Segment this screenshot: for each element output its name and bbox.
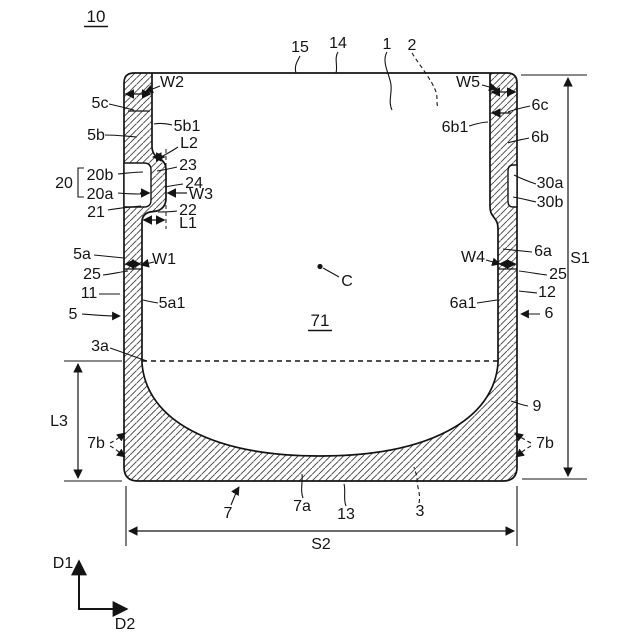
center-point-c xyxy=(317,264,322,269)
label-c: C xyxy=(341,273,353,290)
label-7b-left: 7b xyxy=(87,435,105,452)
label-7a: 7a xyxy=(293,498,311,515)
label-cavity-71: 71 xyxy=(311,311,330,330)
label-20: 20 xyxy=(55,175,73,192)
leader-c xyxy=(323,268,339,277)
left-wall-groove-20 xyxy=(124,163,151,207)
label-25-right: 25 xyxy=(549,266,567,283)
label-20b: 20b xyxy=(87,167,114,184)
leader-6b1 xyxy=(469,122,488,126)
label-7b-right: 7b xyxy=(536,435,554,452)
leader-15 xyxy=(295,56,300,73)
leader-6a1 xyxy=(477,300,497,303)
label-5b1: 5b1 xyxy=(174,118,201,135)
label-5: 5 xyxy=(69,306,78,323)
leader-5b1 xyxy=(154,123,172,125)
label-l3: L3 xyxy=(50,413,68,430)
bracket-20 xyxy=(78,168,84,197)
label-s2: S2 xyxy=(311,536,331,553)
label-w5: W5 xyxy=(456,74,480,91)
leader-2 xyxy=(412,53,438,108)
label-s1: S1 xyxy=(570,250,590,267)
leader-12 xyxy=(519,291,537,293)
label-6: 6 xyxy=(545,305,554,322)
label-14: 14 xyxy=(329,35,347,52)
leader-7b-right-lower xyxy=(516,446,531,457)
label-figure-number: 10 xyxy=(87,7,106,26)
label-23: 23 xyxy=(179,157,197,174)
label-w3: W3 xyxy=(189,186,213,203)
label-30a: 30a xyxy=(537,175,564,192)
label-11: 11 xyxy=(81,285,98,302)
label-9: 9 xyxy=(533,398,542,415)
label-6c: 6c xyxy=(532,97,549,114)
leader-5 xyxy=(82,314,120,316)
patent-figure-page: 10 15 14 1 2 W2 W5 5c 6c 5b 6b 5b1 6b1 L… xyxy=(0,0,640,640)
label-21: 21 xyxy=(87,204,105,221)
leader-14 xyxy=(336,52,338,73)
leader-5a1 xyxy=(143,300,158,303)
label-13: 13 xyxy=(337,506,355,523)
right-wall-groove-30 xyxy=(508,165,517,207)
label-25-left: 25 xyxy=(83,266,101,283)
label-5c: 5c xyxy=(92,95,109,112)
leader-5a xyxy=(94,255,124,258)
leader-24 xyxy=(165,184,183,187)
leader-13 xyxy=(344,484,346,506)
leader-25-right xyxy=(519,271,547,275)
label-15: 15 xyxy=(291,39,309,56)
label-w4: W4 xyxy=(461,249,485,266)
leader-7b-left-upper xyxy=(110,433,125,443)
label-7: 7 xyxy=(224,505,233,522)
label-6a: 6a xyxy=(534,243,552,260)
label-d2: D2 xyxy=(115,616,136,633)
label-2: 2 xyxy=(408,37,417,54)
label-5b: 5b xyxy=(87,127,105,144)
leader-7b-left-lower xyxy=(110,446,125,457)
label-6a1: 6a1 xyxy=(450,295,477,312)
label-w1: W1 xyxy=(152,251,176,268)
label-12: 12 xyxy=(538,284,556,301)
label-l2: L2 xyxy=(180,135,198,152)
label-5a: 5a xyxy=(73,246,91,263)
label-20a: 20a xyxy=(87,186,114,203)
label-d1: D1 xyxy=(53,555,74,572)
label-w2: W2 xyxy=(160,74,184,91)
patent-figure: 10 15 14 1 2 W2 W5 5c 6c 5b 6b 5b1 6b1 L… xyxy=(0,0,640,640)
leader-l2 xyxy=(163,147,178,156)
label-l1: L1 xyxy=(179,215,197,232)
label-3a: 3a xyxy=(91,338,109,355)
label-6b: 6b xyxy=(531,129,549,146)
leader-1 xyxy=(385,52,392,110)
leader-22 xyxy=(158,211,177,212)
direction-axes xyxy=(78,561,127,609)
label-30b: 30b xyxy=(537,194,564,211)
label-6b1: 6b1 xyxy=(442,119,469,136)
label-3: 3 xyxy=(416,503,425,520)
label-5a1: 5a1 xyxy=(159,295,186,312)
label-1: 1 xyxy=(383,36,392,53)
leader-7 xyxy=(231,487,239,505)
